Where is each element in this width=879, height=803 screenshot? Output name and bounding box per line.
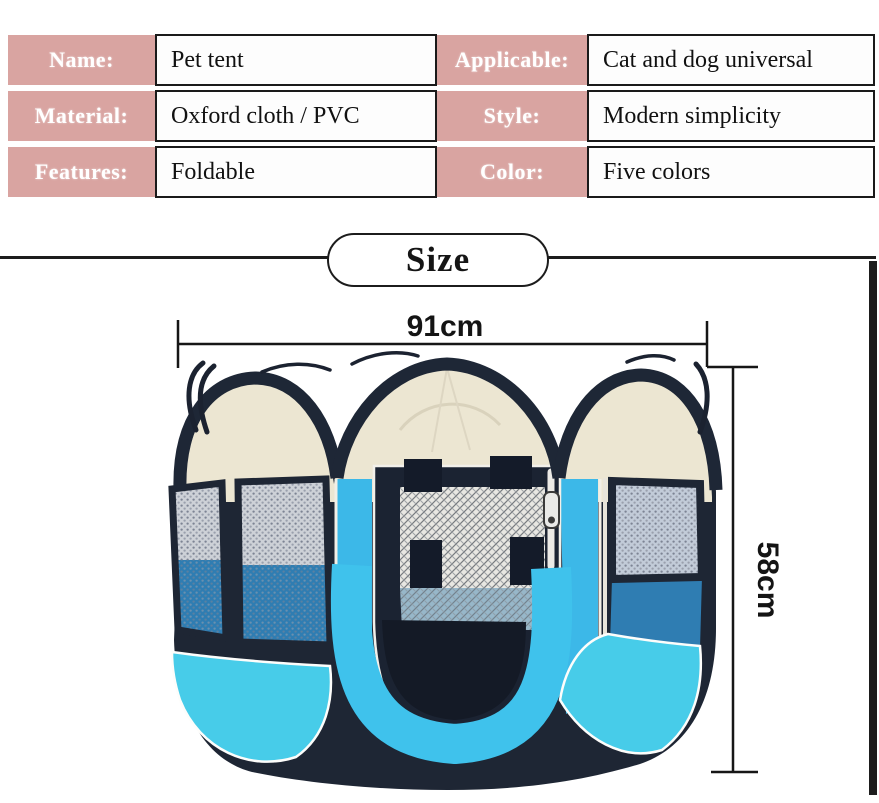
- spec-table: Name: Pet tent Applicable: Cat and dog u…: [8, 34, 875, 202]
- spec-value-material: Oxford cloth / PVC: [155, 90, 437, 142]
- mesh-window-left-a: [172, 483, 226, 638]
- spec-value-features: Foldable: [155, 146, 437, 198]
- spec-label-material: Material:: [8, 91, 155, 141]
- top-seam: [352, 353, 418, 364]
- spec-row: Features: Foldable Color: Five colors: [8, 146, 875, 198]
- spec-row: Name: Pet tent Applicable: Cat and dog u…: [8, 34, 875, 86]
- velcro-tab: [490, 456, 532, 489]
- spec-value-style: Modern simplicity: [587, 90, 875, 142]
- height-dimension-label: 58cm: [751, 542, 784, 619]
- spec-value-applicable: Cat and dog universal: [587, 34, 875, 86]
- top-seam: [627, 356, 674, 362]
- pet-tent-illustration: [172, 353, 716, 790]
- velcro-tab: [404, 459, 442, 492]
- top-seam: [262, 364, 330, 372]
- mesh-window-right: [605, 478, 702, 650]
- spec-value-name: Pet tent: [155, 34, 437, 86]
- spec-row: Material: Oxford cloth / PVC Style: Mode…: [8, 90, 875, 142]
- spec-value-color: Five colors: [587, 146, 875, 198]
- spec-label-name: Name:: [8, 35, 155, 85]
- velcro-tab: [410, 540, 442, 588]
- spec-label-applicable: Applicable:: [437, 35, 587, 85]
- size-heading: Size: [406, 240, 470, 280]
- spec-label-color: Color:: [437, 147, 587, 197]
- product-infographic: Name: Pet tent Applicable: Cat and dog u…: [0, 0, 879, 803]
- spec-label-style: Style:: [437, 91, 587, 141]
- front-door: [351, 456, 560, 758]
- spec-label-features: Features:: [8, 147, 155, 197]
- mesh-window-left-b: [238, 479, 330, 645]
- size-pill: Size: [327, 233, 549, 287]
- width-dimension-label: 91cm: [407, 310, 484, 343]
- corner-panel-left: [172, 652, 331, 762]
- right-edge-strip: [869, 261, 877, 795]
